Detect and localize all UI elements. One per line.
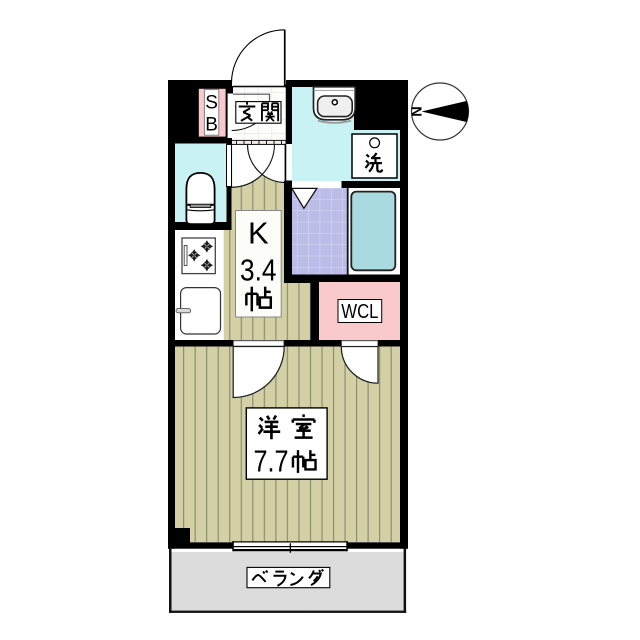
svg-text:S: S (205, 92, 218, 113)
svg-text:7.7: 7.7 (254, 444, 289, 479)
svg-text:B: B (205, 114, 218, 135)
svg-text:N: N (410, 106, 426, 116)
svg-text:3.4: 3.4 (240, 253, 277, 288)
svg-text:K: K (248, 216, 269, 251)
svg-text:WCL: WCL (341, 300, 378, 323)
